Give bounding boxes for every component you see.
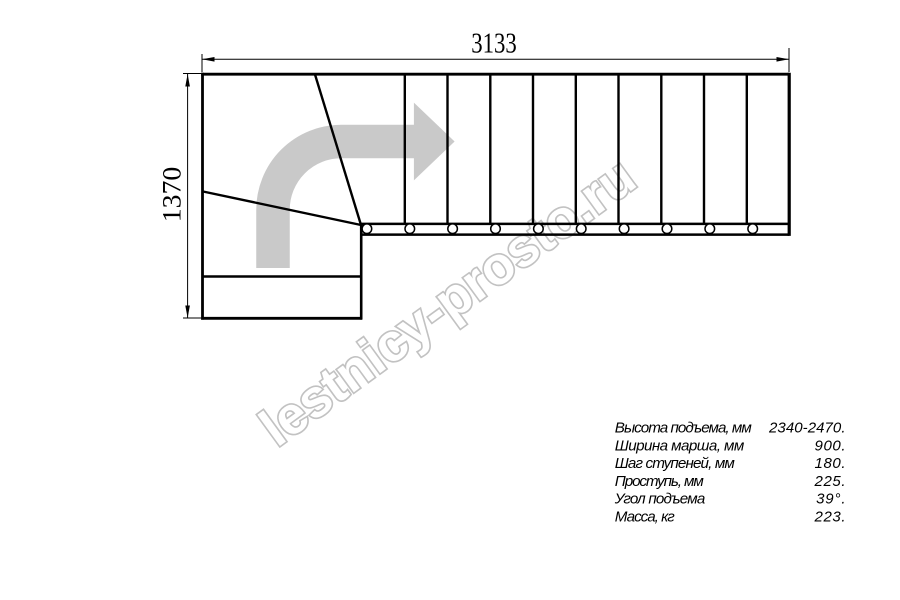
svg-text:225.: 225. xyxy=(814,473,846,490)
svg-text:1370: 1370 xyxy=(157,167,186,223)
svg-text:39°.: 39°. xyxy=(816,491,845,508)
svg-text:3133: 3133 xyxy=(471,29,517,60)
svg-text:Шаг ступеней, мм: Шаг ступеней, мм xyxy=(615,455,736,472)
svg-text:223.: 223. xyxy=(814,508,846,525)
svg-text:Высота подъема, мм: Высота подъема, мм xyxy=(615,420,753,437)
svg-text:2340-2470.: 2340-2470. xyxy=(768,420,846,437)
svg-text:Ширина марша, мм: Ширина марша, мм xyxy=(615,437,745,454)
svg-text:180.: 180. xyxy=(815,455,846,472)
svg-text:900.: 900. xyxy=(815,437,846,454)
svg-text:Масса, кг: Масса, кг xyxy=(615,508,676,525)
svg-text:Проступь, мм: Проступь, мм xyxy=(615,473,705,490)
svg-text:Угол подъема: Угол подъема xyxy=(614,491,706,508)
